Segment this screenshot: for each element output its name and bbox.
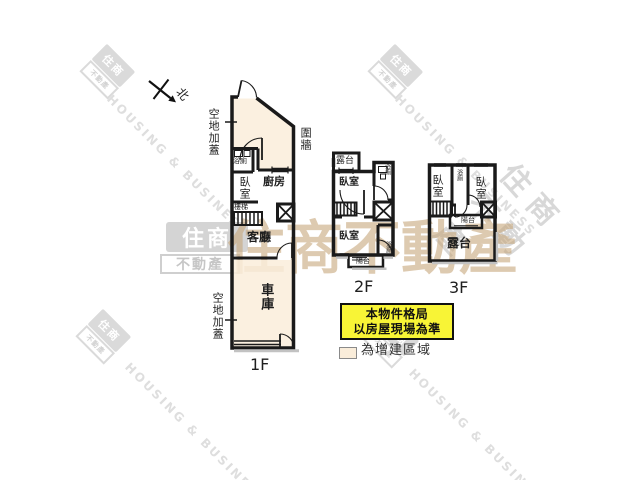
notice-line1: 本物件格局: [342, 307, 452, 322]
notice-box: 本物件格局 以房屋現場為準: [340, 303, 454, 340]
shaft-x-icon: [374, 202, 393, 220]
door-leaf: [238, 81, 242, 98]
terrace-2f-label: 露台: [336, 157, 354, 167]
bedroom-2f-front-label: 臥室: [339, 177, 359, 188]
bedroom-1f-label: 臥室: [238, 176, 250, 200]
door-arc: [277, 243, 292, 258]
bath-fixture: [244, 151, 250, 157]
stairs-treads: [433, 202, 451, 216]
open-air-bottom-label: 空地加蓋: [211, 292, 223, 340]
bedroom-3f-right-label: 臥室: [474, 176, 486, 200]
housing-watermark-text: HOUSING & BUSINESS: [406, 366, 553, 480]
balcony-2f-label: 陽台: [356, 258, 370, 266]
floor-label-3f: 3F: [449, 279, 468, 297]
balcony-3f-label: 陽台: [461, 217, 475, 225]
floor-plan-canvas: 住商 不動產 住商 不動產 住商 不動產 住商 不動產 HOUSING & BU…: [0, 0, 640, 480]
door-arc: [242, 81, 257, 98]
stairs-treads: [337, 203, 355, 216]
open-air-top-label: 空地加蓋: [207, 108, 219, 156]
floor-label-2f: 2F: [354, 278, 373, 296]
bathroom-2f-front-label: 浴廁: [383, 163, 390, 175]
floor-label-1f: 1F: [250, 356, 269, 374]
housing-watermark-text: HOUSING & BUSINESS: [122, 360, 269, 480]
stairs-1f-label: 樓梯: [234, 204, 248, 212]
notice-line2: 以房屋現場為準: [342, 322, 452, 337]
living-room-label: 客廳: [247, 231, 271, 244]
bathroom-3f-label: 浴廁: [455, 169, 462, 181]
stairs-treads: [238, 212, 258, 225]
brand-diamond-logo: 住商 不動產: [375, 52, 415, 92]
brand-diamond-logo: 住商 不動產: [87, 52, 127, 92]
brand-diamond-logo: 住商 不動產: [83, 317, 123, 357]
shaft-x-icon: [278, 204, 295, 221]
bathroom-2f-back-label: 浴廁: [384, 241, 391, 253]
addition-swatch: [339, 347, 357, 359]
door-arc: [374, 186, 388, 200]
addition-legend-label: 為增建區域: [361, 344, 431, 358]
fence-label: 圍牆: [299, 127, 311, 151]
terrace-3f-label: 露台: [447, 237, 471, 250]
bathroom-1f-label: 浴廁: [233, 158, 247, 166]
garage-label: 車庫: [258, 283, 272, 311]
bedroom-2f-back-label: 臥室: [339, 231, 359, 242]
bedroom-3f-left-label: 臥室: [431, 174, 443, 198]
kitchen-label: 廚房: [263, 176, 285, 188]
